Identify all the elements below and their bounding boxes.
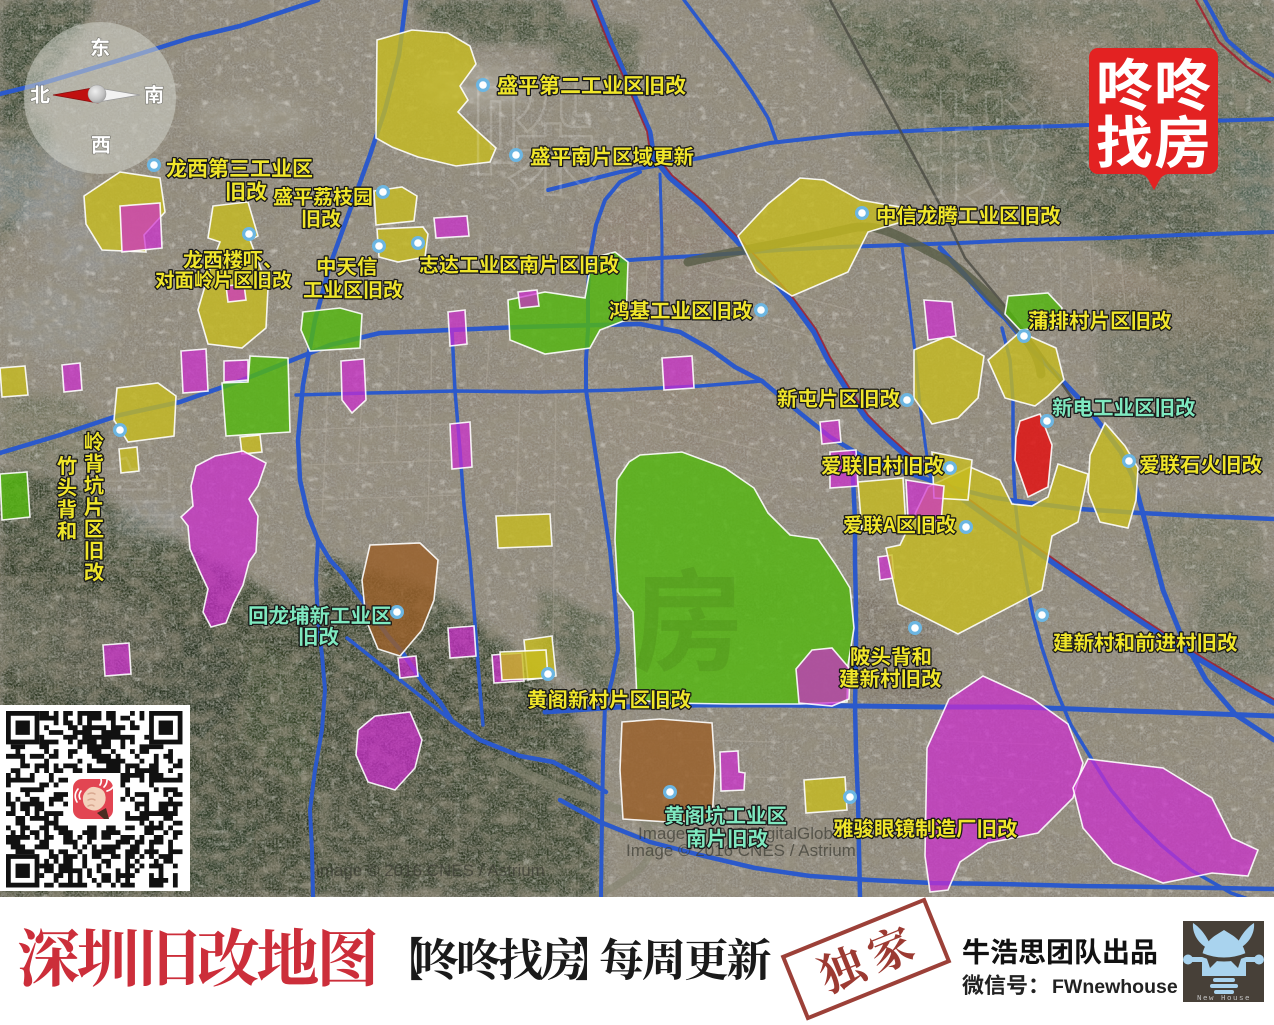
svg-text:New House: New House <box>1197 995 1251 1003</box>
svg-text:FWnewhouse: FWnewhouse <box>1052 976 1178 998</box>
svg-text:Image © 2016 CNES / Astrium: Image © 2016 CNES / Astrium <box>315 861 545 880</box>
